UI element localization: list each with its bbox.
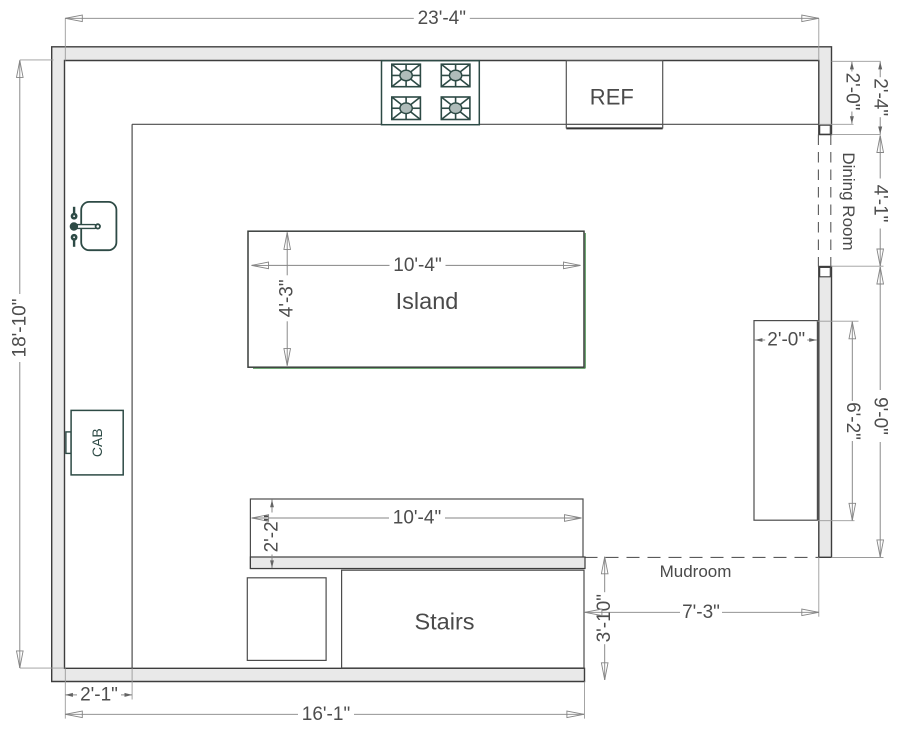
svg-text:Stairs: Stairs: [414, 608, 474, 634]
svg-text:6'-2": 6'-2": [842, 402, 863, 440]
svg-text:Dining Room: Dining Room: [839, 152, 858, 250]
svg-text:7'-3": 7'-3": [682, 602, 720, 623]
svg-text:Island: Island: [396, 288, 459, 314]
svg-text:18'-10": 18'-10": [9, 299, 30, 358]
svg-text:4'-3": 4'-3": [277, 279, 298, 317]
svg-text:REF: REF: [590, 84, 634, 109]
svg-text:Mudroom: Mudroom: [660, 562, 732, 581]
svg-text:3'-10": 3'-10": [594, 594, 615, 642]
svg-text:2'-0": 2'-0": [767, 330, 805, 351]
svg-text:23'-4": 23'-4": [418, 8, 466, 29]
svg-text:16'-1": 16'-1": [302, 704, 350, 725]
svg-text:10'-4": 10'-4": [393, 508, 441, 529]
svg-text:2'-4": 2'-4": [870, 78, 891, 116]
svg-text:2'-0": 2'-0": [841, 73, 862, 111]
svg-text:2'-2": 2'-2": [262, 515, 283, 553]
svg-text:4'-1": 4'-1": [870, 185, 891, 223]
svg-text:2'-1": 2'-1": [80, 684, 118, 705]
svg-text:CAB: CAB: [89, 428, 105, 457]
svg-text:10'-4": 10'-4": [393, 255, 441, 276]
svg-text:9'-0": 9'-0": [870, 397, 891, 435]
